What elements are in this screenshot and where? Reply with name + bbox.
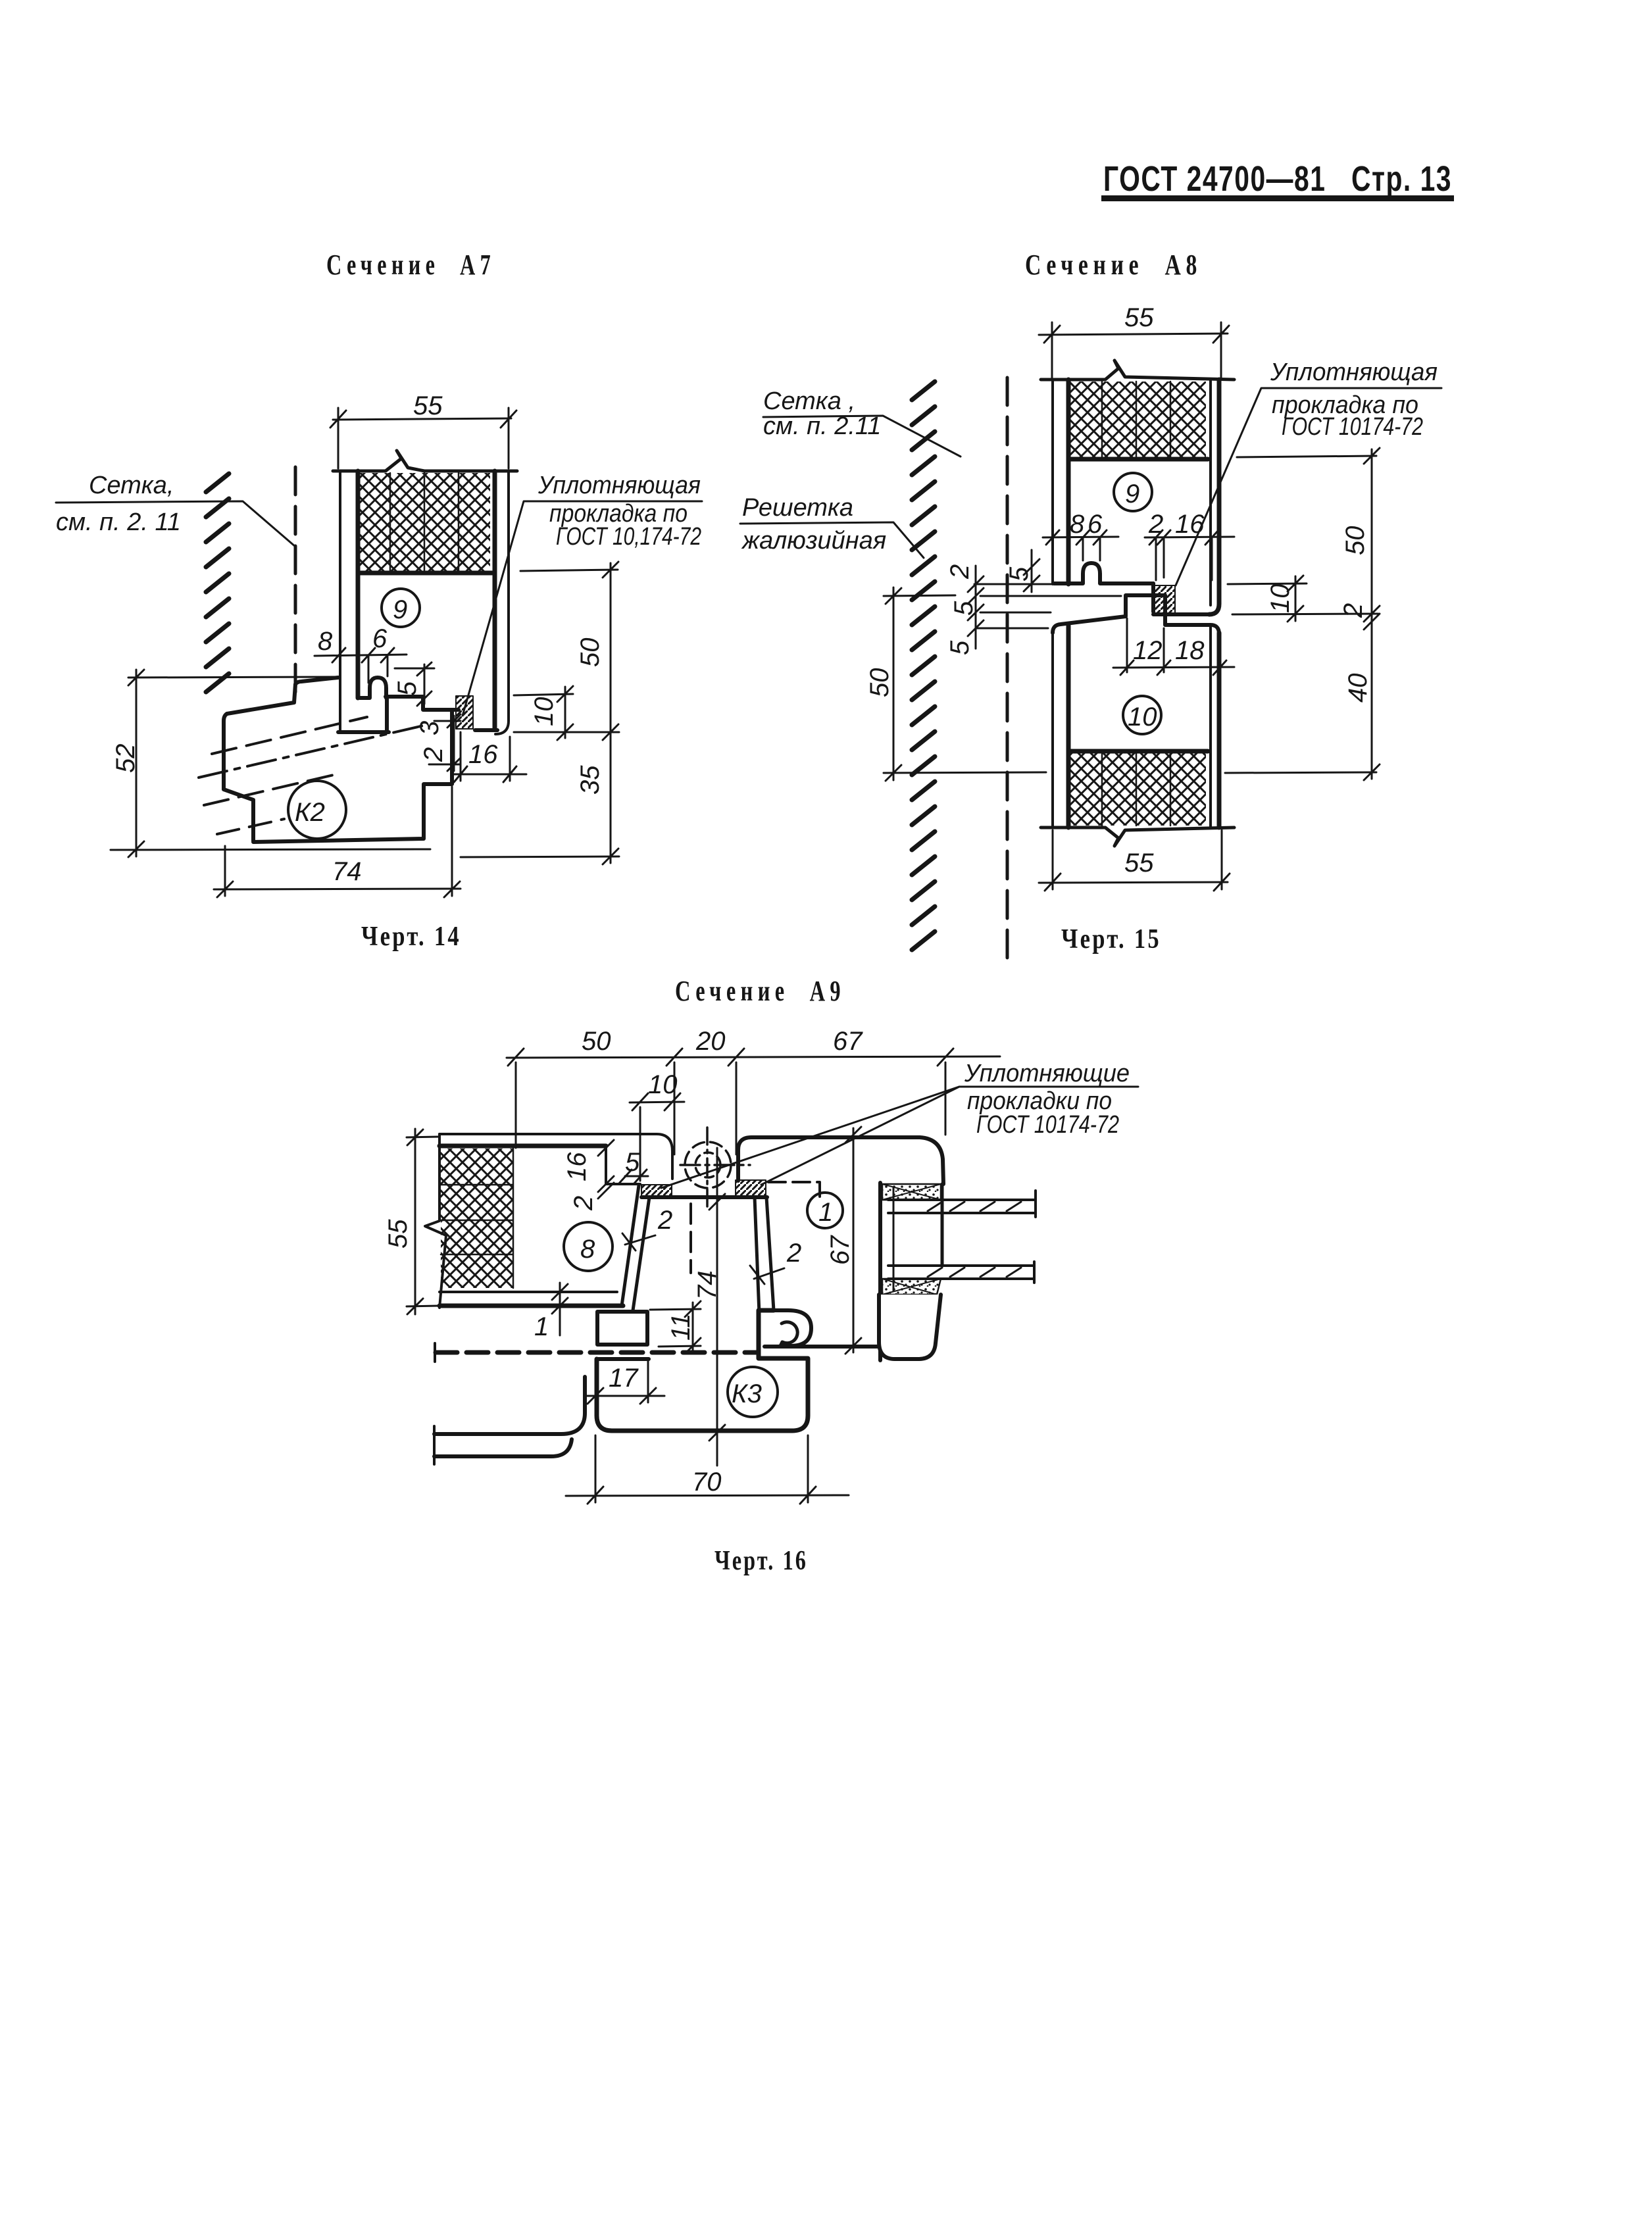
svg-text:12: 12 — [1133, 636, 1163, 665]
svg-text:Уплотняющая: Уплотняющая — [1270, 359, 1438, 386]
svg-text:3: 3 — [415, 721, 444, 735]
svg-text:50: 50 — [576, 638, 605, 668]
svg-text:11: 11 — [666, 1313, 695, 1341]
svg-text:20: 20 — [695, 1027, 726, 1056]
svg-text:8: 8 — [1070, 510, 1085, 539]
svg-text:Черт. 15: Черт. 15 — [1061, 924, 1161, 954]
svg-text:2: 2 — [569, 1196, 598, 1211]
svg-text:9: 9 — [1125, 480, 1139, 508]
svg-text:К3: К3 — [732, 1379, 762, 1408]
svg-text:50: 50 — [865, 668, 894, 698]
svg-text:Черт. 16: Черт. 16 — [714, 1546, 808, 1576]
svg-text:Черт. 14: Черт. 14 — [361, 922, 461, 952]
svg-text:67: 67 — [826, 1235, 855, 1265]
svg-text:50: 50 — [1341, 526, 1370, 556]
svg-text:55: 55 — [384, 1219, 413, 1249]
svg-text:16: 16 — [1175, 510, 1205, 539]
svg-text:ГОСТ 10,174-72: ГОСТ 10,174-72 — [556, 523, 701, 551]
svg-text:55: 55 — [413, 391, 443, 420]
svg-text:5: 5 — [393, 681, 422, 696]
svg-text:Сечение А9: Сечение А9 — [675, 975, 845, 1007]
svg-text:2: 2 — [1148, 510, 1163, 539]
svg-text:55: 55 — [1124, 303, 1154, 332]
svg-text:ГОСТ 10174-72: ГОСТ 10174-72 — [1282, 413, 1423, 441]
svg-text:74: 74 — [332, 857, 362, 886]
svg-text:18: 18 — [1175, 636, 1205, 665]
svg-text:см. п. 2. 11: см. п. 2. 11 — [56, 508, 181, 536]
svg-text:9: 9 — [393, 595, 407, 624]
svg-text:2: 2 — [657, 1206, 672, 1235]
svg-text:ГОСТ 24700—81 Стр. 13: ГОСТ 24700—81 Стр. 13 — [1103, 159, 1452, 199]
svg-text:10: 10 — [1128, 703, 1157, 731]
svg-text:16: 16 — [468, 740, 498, 769]
svg-text:К2: К2 — [295, 798, 325, 827]
svg-text:1: 1 — [818, 1198, 833, 1227]
svg-text:10: 10 — [530, 697, 559, 727]
svg-text:жалюзийная: жалюзийная — [741, 527, 886, 555]
svg-text:40: 40 — [1343, 674, 1372, 703]
svg-text:8: 8 — [580, 1235, 595, 1264]
svg-text:16: 16 — [563, 1152, 591, 1181]
svg-text:2: 2 — [419, 747, 448, 762]
svg-text:2: 2 — [1339, 603, 1368, 618]
svg-text:17: 17 — [609, 1364, 639, 1393]
svg-text:67: 67 — [833, 1027, 863, 1056]
svg-text:2: 2 — [945, 564, 974, 580]
svg-text:Сечение А7: Сечение А7 — [326, 249, 495, 281]
svg-text:Сетка,: Сетка, — [89, 472, 174, 499]
svg-text:Сечение А8: Сечение А8 — [1025, 249, 1202, 281]
svg-text:Уплотняющая: Уплотняющая — [538, 472, 701, 499]
svg-text:70: 70 — [692, 1468, 722, 1497]
svg-text:6: 6 — [1088, 510, 1103, 539]
svg-text:35: 35 — [576, 765, 605, 795]
svg-text:5: 5 — [945, 640, 974, 655]
svg-text:Сетка ,: Сетка , — [763, 387, 855, 415]
svg-text:50: 50 — [582, 1027, 611, 1056]
svg-text:1: 1 — [534, 1312, 549, 1341]
svg-text:2: 2 — [786, 1239, 801, 1268]
svg-text:ГОСТ 10174-72: ГОСТ 10174-72 — [976, 1111, 1119, 1139]
svg-text:5: 5 — [625, 1148, 640, 1177]
svg-text:Уплотняющие: Уплотняющие — [964, 1060, 1130, 1087]
svg-text:8: 8 — [318, 627, 333, 656]
svg-text:10: 10 — [648, 1070, 678, 1099]
svg-text:55: 55 — [1124, 849, 1154, 878]
svg-text:Решетка: Решетка — [742, 494, 853, 522]
